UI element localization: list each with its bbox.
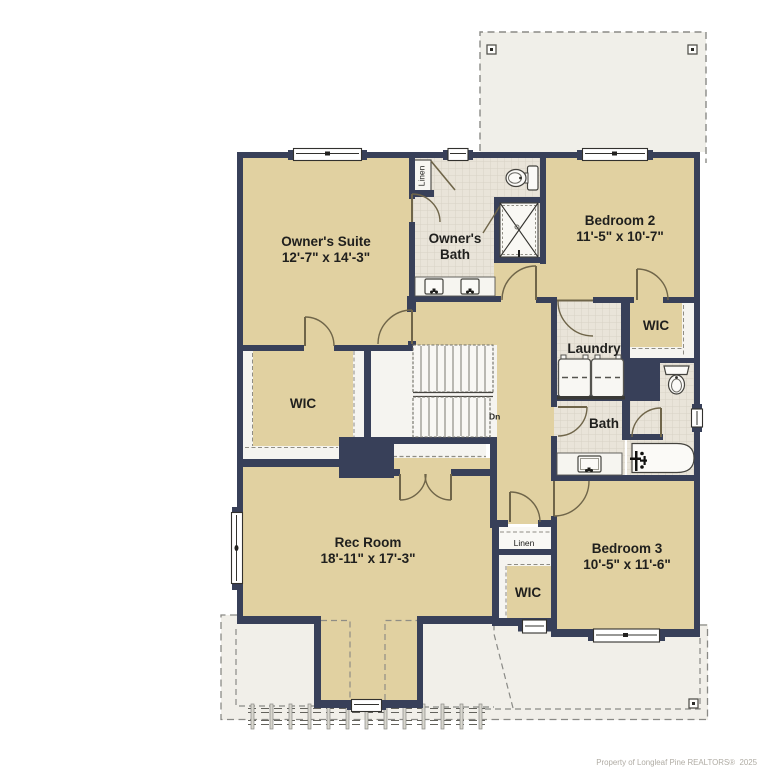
svg-text:Linen: Linen [417,165,427,186]
svg-text:WIC: WIC [290,396,316,411]
svg-text:Property of Longleaf Pine REAL: Property of Longleaf Pine REALTORS® 2025 [596,758,757,767]
svg-text:Owner's Suite: Owner's Suite [281,234,371,249]
svg-text:Rec Room: Rec Room [335,535,402,550]
svg-text:WIC: WIC [515,585,541,600]
svg-text:12'-7" x 14'-3": 12'-7" x 14'-3" [282,250,370,265]
svg-text:Linen: Linen [514,538,535,548]
svg-text:Bedroom 2: Bedroom 2 [585,213,656,228]
svg-text:Owner's: Owner's [429,231,482,246]
svg-text:18'-11" x 17'-3": 18'-11" x 17'-3" [320,551,415,566]
svg-text:Laundry: Laundry [567,341,621,356]
svg-text:10'-5" x 11'-6": 10'-5" x 11'-6" [583,557,671,572]
svg-text:Dn: Dn [489,412,500,422]
svg-text:Bath: Bath [440,247,470,262]
svg-text:Bedroom 3: Bedroom 3 [592,541,663,556]
svg-text:11'-5" x 10'-7": 11'-5" x 10'-7" [576,229,664,244]
svg-text:Bath: Bath [589,416,619,431]
svg-text:WIC: WIC [643,318,669,333]
